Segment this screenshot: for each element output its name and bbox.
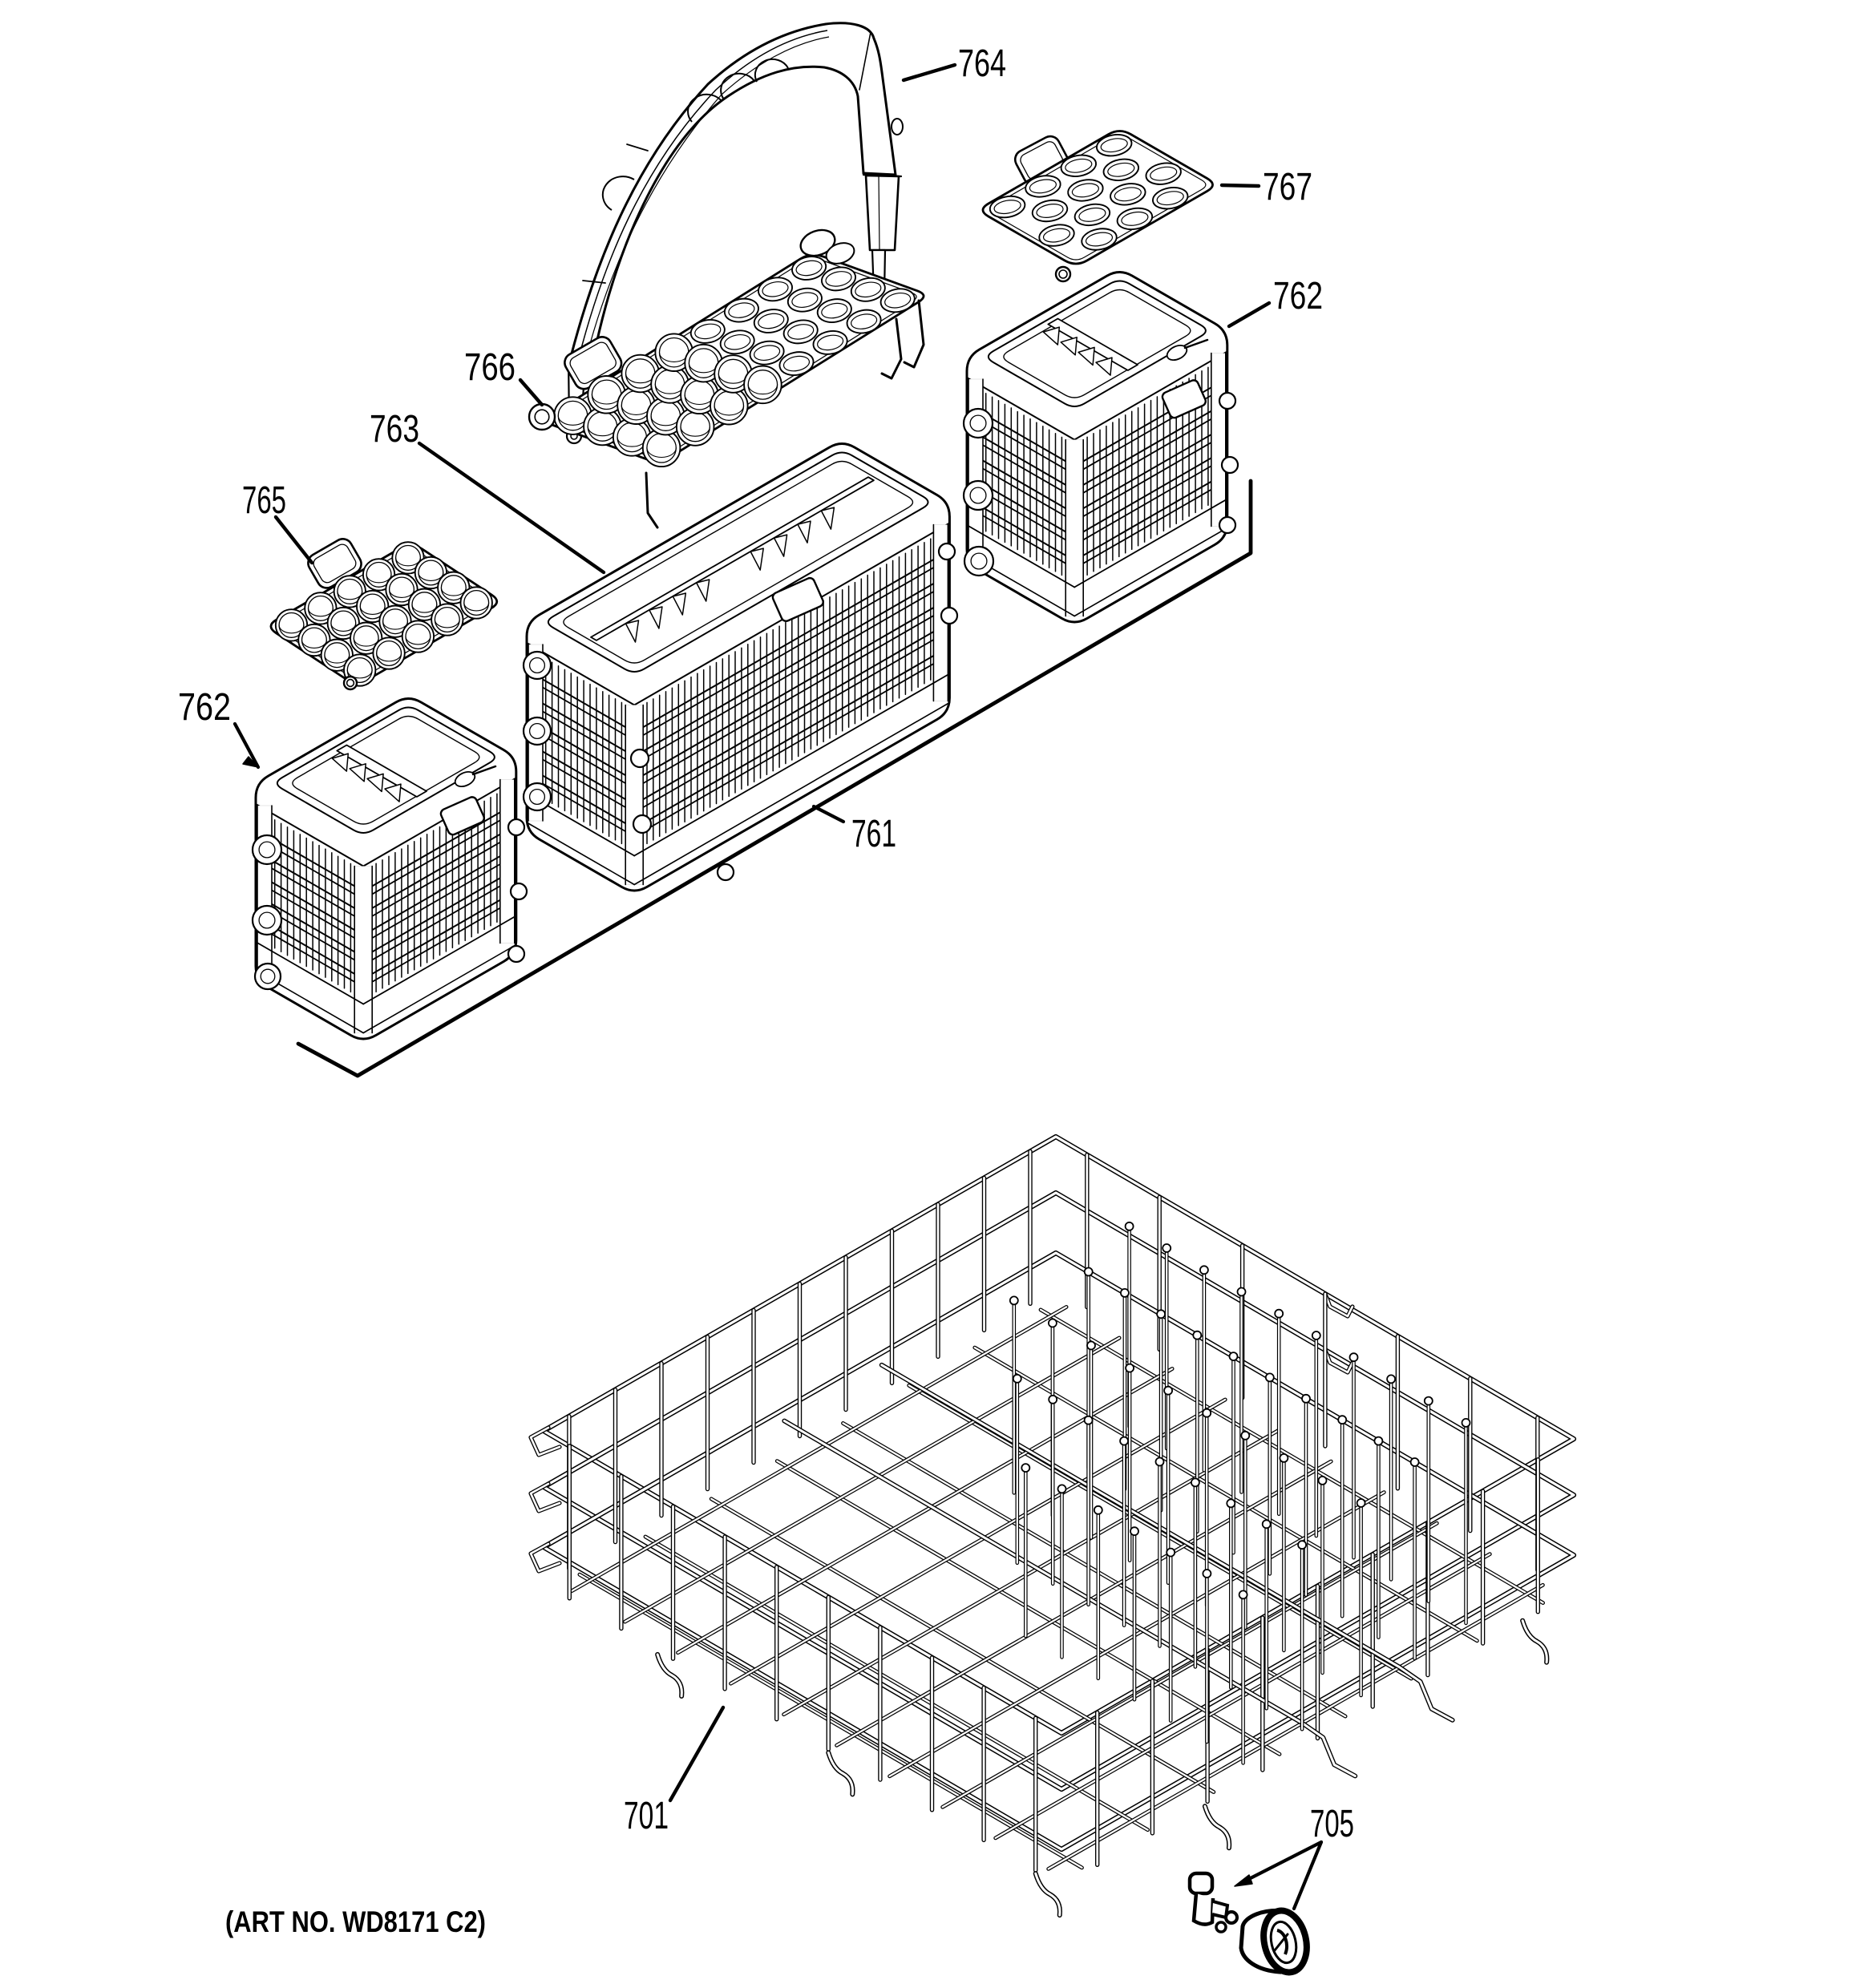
svg-text:761: 761 [851,813,896,855]
svg-text:701: 701 [624,1795,669,1837]
svg-text:762: 762 [178,686,231,729]
svg-text:762: 762 [1273,275,1323,317]
svg-text:(ART NO. WD8171 C2): (ART NO. WD8171 C2) [225,1905,486,1938]
svg-text:764: 764 [958,42,1006,85]
svg-text:763: 763 [370,408,419,451]
svg-text:766: 766 [464,346,516,389]
svg-text:705: 705 [1310,1803,1354,1845]
svg-text:765: 765 [242,479,286,522]
svg-text:767: 767 [1263,166,1312,208]
